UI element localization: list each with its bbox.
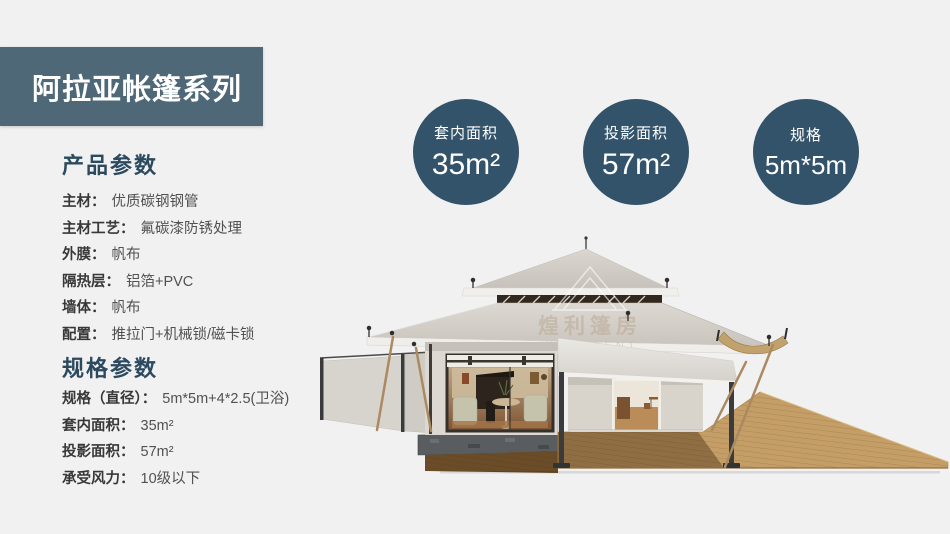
watermark-cn-text: 煌利篷房 — [538, 314, 642, 338]
badge-label: 规格 — [790, 124, 822, 145]
series-title-banner: 阿拉亚帐篷系列 — [0, 47, 263, 126]
tent-product-image: 煌利篷房 WELL TENT — [300, 225, 950, 515]
spec-value: 35m² — [141, 418, 174, 434]
spec-label: 承受风力： — [62, 471, 135, 487]
interior-armchair-right — [524, 395, 547, 422]
spec-label: 套内面积： — [62, 418, 135, 434]
spec-value: 帆布 — [112, 247, 141, 263]
interior-armchair-left — [453, 397, 477, 425]
badge-value: 57m² — [602, 148, 670, 182]
spec-label: 外膜： — [62, 247, 106, 263]
section-heading-product-params: 产品参数 — [62, 155, 392, 177]
spec-label: 主材： — [62, 194, 106, 210]
spec-value: 优质碳钢钢管 — [112, 194, 199, 210]
spec-value: 帆布 — [112, 300, 141, 316]
spec-label: 投影面积： — [62, 444, 135, 460]
tent-left-screen — [320, 351, 433, 434]
interior-cabinet — [617, 397, 630, 419]
tent-top-roof — [462, 236, 679, 296]
spec-value: 5m*5m+4*2.5(卫浴) — [162, 391, 289, 407]
spec-value: 57m² — [141, 444, 174, 460]
spec-value: 铝箔+PVC — [126, 274, 193, 290]
spec-value: 推拉门+机械锁/磁卡锁 — [112, 327, 255, 343]
spec-value: 10级以下 — [141, 471, 201, 487]
spec-label: 规格（直径）： — [62, 391, 156, 407]
badge-projection-area: 投影面积 57m² — [583, 99, 689, 205]
badge-value: 35m² — [432, 148, 500, 182]
spec-row: 主材：优质碳钢钢管 — [62, 195, 392, 210]
tent-right-wing — [568, 377, 703, 430]
badge-interior-area: 套内面积 35m² — [413, 99, 519, 205]
badge-size-spec: 规格 5m*5m — [753, 99, 859, 205]
spec-label: 隔热层： — [62, 274, 120, 290]
spec-label: 配置： — [62, 327, 106, 343]
badge-value: 5m*5m — [765, 150, 847, 181]
tent-window — [447, 355, 553, 431]
spec-value: 氟碳漆防锈处理 — [141, 221, 243, 237]
spec-label: 墙体： — [62, 300, 106, 316]
series-title: 阿拉亚帐篷系列 — [32, 66, 242, 108]
badge-label: 投影面积 — [604, 122, 668, 143]
tent-lattice-band — [497, 295, 662, 304]
spec-label: 主材工艺： — [62, 221, 135, 237]
badge-label: 套内面积 — [434, 122, 498, 143]
